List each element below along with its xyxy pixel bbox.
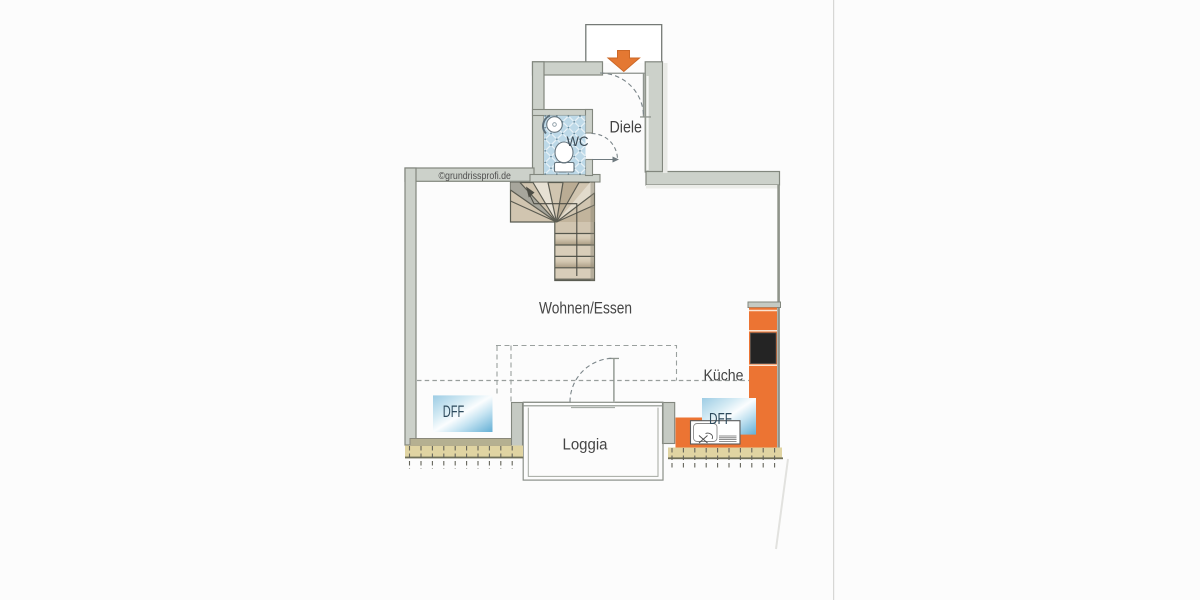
svg-text:©grundrissprofi.de: ©grundrissprofi.de [439, 171, 512, 182]
svg-text:Loggia: Loggia [563, 437, 608, 454]
svg-text:WC: WC [567, 133, 589, 149]
svg-text:DFF: DFF [443, 402, 465, 421]
svg-text:Küche: Küche [704, 368, 744, 385]
svg-text:Wohnen/Essen: Wohnen/Essen [539, 300, 632, 318]
svg-text:Diele: Diele [610, 119, 643, 137]
svg-text:DFF: DFF [709, 411, 732, 428]
